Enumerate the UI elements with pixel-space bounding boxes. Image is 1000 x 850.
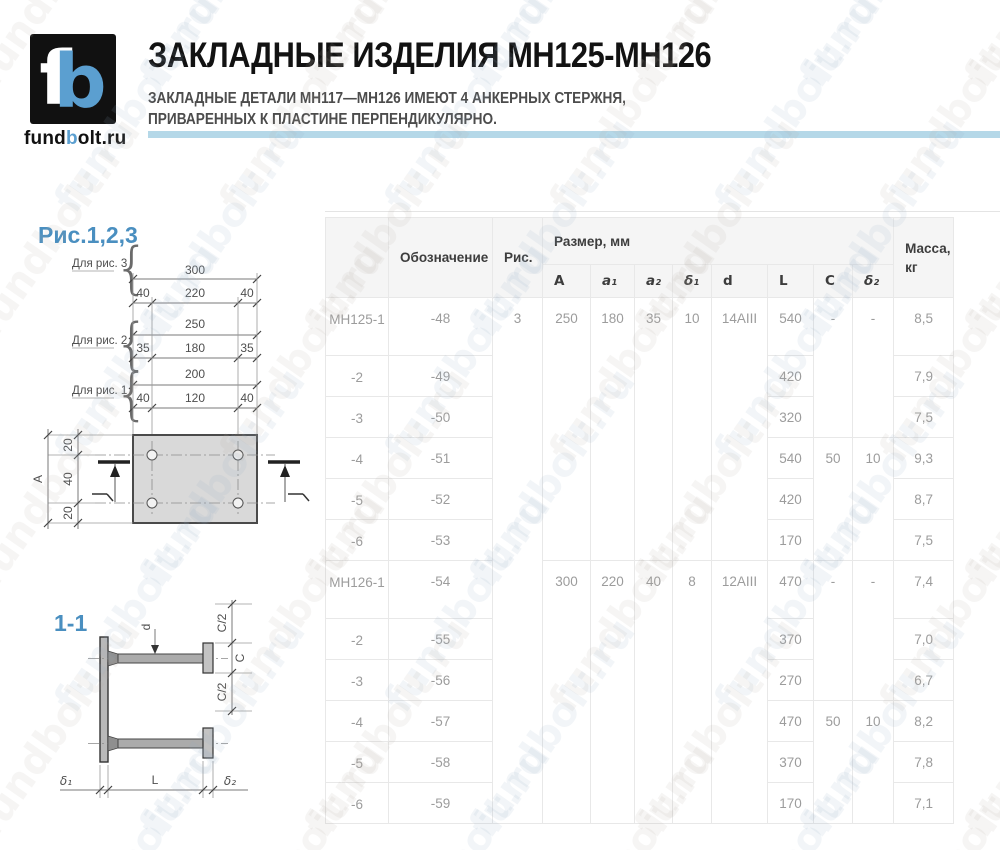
blue-divider-bar (148, 131, 1000, 138)
cell-L: 170 (768, 520, 814, 561)
spec-table: Обозначение Рис. Размер, мм Масса, кг А … (325, 217, 954, 824)
dim-L: L (152, 773, 159, 787)
cell-mass: 7,9 (894, 356, 954, 397)
cell-d2: - (853, 298, 894, 438)
watermark-text: fundbolt.ru (706, 0, 890, 221)
cell-mass: 6,7 (894, 660, 954, 701)
section-mark-right (268, 462, 309, 502)
cell-L: 320 (768, 397, 814, 438)
cell-L: 540 (768, 298, 814, 356)
header-col-a2: а₂ (635, 265, 673, 298)
dim-total-250: 250 (185, 317, 205, 331)
dim-seg: 35 (136, 341, 150, 355)
dim-c: С (233, 653, 247, 662)
section-heading: 1-1 (54, 610, 87, 636)
cell-a1: 180 (591, 298, 635, 561)
header-mass-line1: Масса, (905, 239, 949, 258)
dim-seg: 20 (61, 438, 75, 452)
anchor-hole (147, 498, 157, 508)
cell-L: 370 (768, 742, 814, 783)
cell-L: 470 (768, 561, 814, 619)
logo-site-text: fundbolt.ru (24, 128, 124, 150)
logo-site-pre: fund (24, 128, 66, 149)
header-col-delta1: δ₁ (673, 265, 712, 298)
header-blank (326, 218, 389, 298)
cell-L: 470 (768, 701, 814, 742)
cell-name: -3 (326, 397, 389, 438)
cell-name: МН126-1 (326, 561, 389, 619)
cell-mass: 7,0 (894, 619, 954, 660)
cell-L: 540 (768, 438, 814, 479)
page-subtitle: ЗАКЛАДНЫЕ ДЕТАЛИ МН117—МН126 ИМЕЮТ 4 АНК… (148, 88, 626, 130)
catalog-page: f b fundbolt.ru ЗАКЛАДНЫЕ ИЗДЕЛИЯ МН125-… (0, 0, 1000, 850)
dim-delta2: δ₂ (224, 774, 236, 788)
dim-seg: 20 (61, 506, 75, 520)
cell-code: -55 (389, 619, 493, 660)
watermark-text: fundbolt.ru (871, 0, 1000, 221)
cell-mass: 7,5 (894, 520, 954, 561)
anchor-head-bottom (203, 728, 213, 758)
cell-d2: 10 (853, 701, 894, 824)
table-head: Обозначение Рис. Размер, мм Масса, кг А … (326, 218, 954, 298)
cell-name: -4 (326, 438, 389, 479)
header-col-L: L (768, 265, 814, 298)
cell-code: -52 (389, 479, 493, 520)
cell-L: 370 (768, 619, 814, 660)
cell-name: -6 (326, 783, 389, 824)
cell-L: 270 (768, 660, 814, 701)
dim-seg: 35 (240, 341, 254, 355)
table-row: МН126-1-5430022040812АIII470--7,4 (326, 561, 954, 619)
header-col-C: С (814, 265, 853, 298)
cell-code: -56 (389, 660, 493, 701)
dim-seg: 40 (240, 391, 254, 405)
anchor-rod-bottom (118, 739, 203, 748)
weld-flare (108, 651, 118, 666)
dim-seg: 220 (185, 286, 205, 300)
cell-mass: 7,4 (894, 561, 954, 619)
cell-L: 420 (768, 356, 814, 397)
cell-code: -49 (389, 356, 493, 397)
anchor-hole (147, 450, 157, 460)
cell-a2: 40 (635, 561, 673, 824)
cell-name: -4 (326, 701, 389, 742)
cell-code: -53 (389, 520, 493, 561)
table-row: МН125-1-483250180351014АIII540--8,5 (326, 298, 954, 356)
cell-mass: 8,2 (894, 701, 954, 742)
cell-mass: 8,7 (894, 479, 954, 520)
cell-code: -58 (389, 742, 493, 783)
dim-c-half: С/2 (215, 682, 229, 701)
cell-d2: - (853, 561, 894, 701)
cell-mass: 9,3 (894, 438, 954, 479)
anchor-hole (233, 498, 243, 508)
cell-name: -6 (326, 520, 389, 561)
cell-d2: 10 (853, 438, 894, 561)
dim-seg: 40 (136, 391, 150, 405)
anchor-hole (233, 450, 243, 460)
cell-mass: 7,8 (894, 742, 954, 783)
dim-c-half: С/2 (215, 613, 229, 632)
cell-a2: 35 (635, 298, 673, 561)
cell-d: 14АIII (712, 298, 768, 561)
cell-code: -51 (389, 438, 493, 479)
header-fig: Рис. (493, 218, 543, 298)
dim-seg: 40 (61, 472, 75, 486)
cell-name: -2 (326, 356, 389, 397)
cell-L: 420 (768, 479, 814, 520)
dim-seg: 120 (185, 391, 205, 405)
cell-code: -57 (389, 701, 493, 742)
weld-flare (108, 736, 118, 751)
technical-drawing: Рис.1,2,3 Для рис. 3 { 300 40 220 40 250… (30, 215, 340, 840)
section-mark-left (92, 462, 130, 502)
header-col-A: А (543, 265, 591, 298)
cell-C: 50 (814, 701, 853, 824)
cell-L: 170 (768, 783, 814, 824)
header-col-delta2: δ₂ (853, 265, 894, 298)
anchor-rod-top (118, 654, 203, 663)
dim-A: А (31, 475, 45, 483)
cell-name: МН125-1 (326, 298, 389, 356)
cell-mass: 8,5 (894, 298, 954, 356)
cell-code: -50 (389, 397, 493, 438)
dim-total-300: 300 (185, 263, 205, 277)
cell-C: 50 (814, 438, 853, 561)
dim-seg: 40 (240, 286, 254, 300)
header-size: Размер, мм (543, 218, 894, 265)
cell-mass: 7,5 (894, 397, 954, 438)
header-mass: Масса, кг (894, 218, 954, 298)
dim-seg: 40 (136, 286, 150, 300)
cell-name: -2 (326, 619, 389, 660)
cell-C: - (814, 561, 853, 701)
cell-d1: 10 (673, 298, 712, 561)
cell-name: -3 (326, 660, 389, 701)
logo-letter-b: b (54, 45, 107, 119)
cell-C: - (814, 298, 853, 438)
subtitle-line-1: ЗАКЛАДНЫЕ ДЕТАЛИ МН117—МН126 ИМЕЮТ 4 АНК… (148, 88, 626, 109)
header-mass-line2: кг (905, 258, 949, 277)
subtitle-line-2: ПРИВАРЕННЫХ К ПЛАСТИНЕ ПЕРПЕНДИКУЛЯРНО. (148, 109, 626, 130)
dim-d: d (139, 624, 153, 631)
cell-fig: 3 (493, 298, 543, 824)
cell-code: -59 (389, 783, 493, 824)
logo-site-b: b (66, 128, 78, 149)
cell-A: 300 (543, 561, 591, 824)
watermark-text: fundbolt.ru (791, 0, 975, 96)
cell-a1: 220 (591, 561, 635, 824)
watermark-text: fundbolt.ru (956, 0, 1000, 96)
page-title: ЗАКЛАДНЫЕ ИЗДЕЛИЯ МН125-МН126 (148, 36, 711, 76)
header-designation: Обозначение (389, 218, 493, 298)
cell-d: 12АIII (712, 561, 768, 824)
cell-mass: 7,1 (894, 783, 954, 824)
spec-table-container: Обозначение Рис. Размер, мм Масса, кг А … (325, 211, 1000, 824)
dim-total-200: 200 (185, 367, 205, 381)
cell-d1: 8 (673, 561, 712, 824)
cell-name: -5 (326, 479, 389, 520)
fundbolt-logo: f b (30, 34, 116, 124)
dim-seg: 180 (185, 341, 205, 355)
header-col-d: d (712, 265, 768, 298)
cell-code: -54 (389, 561, 493, 619)
cell-code: -48 (389, 298, 493, 356)
cell-name: -5 (326, 742, 389, 783)
header-col-a1: а₁ (591, 265, 635, 298)
table-body: МН125-1-483250180351014АIII540--8,5-2-49… (326, 298, 954, 824)
logo-site-post: olt.ru (78, 128, 127, 149)
dim-delta1: δ₁ (60, 774, 72, 788)
anchor-head-top (203, 643, 213, 673)
cell-A: 250 (543, 298, 591, 561)
